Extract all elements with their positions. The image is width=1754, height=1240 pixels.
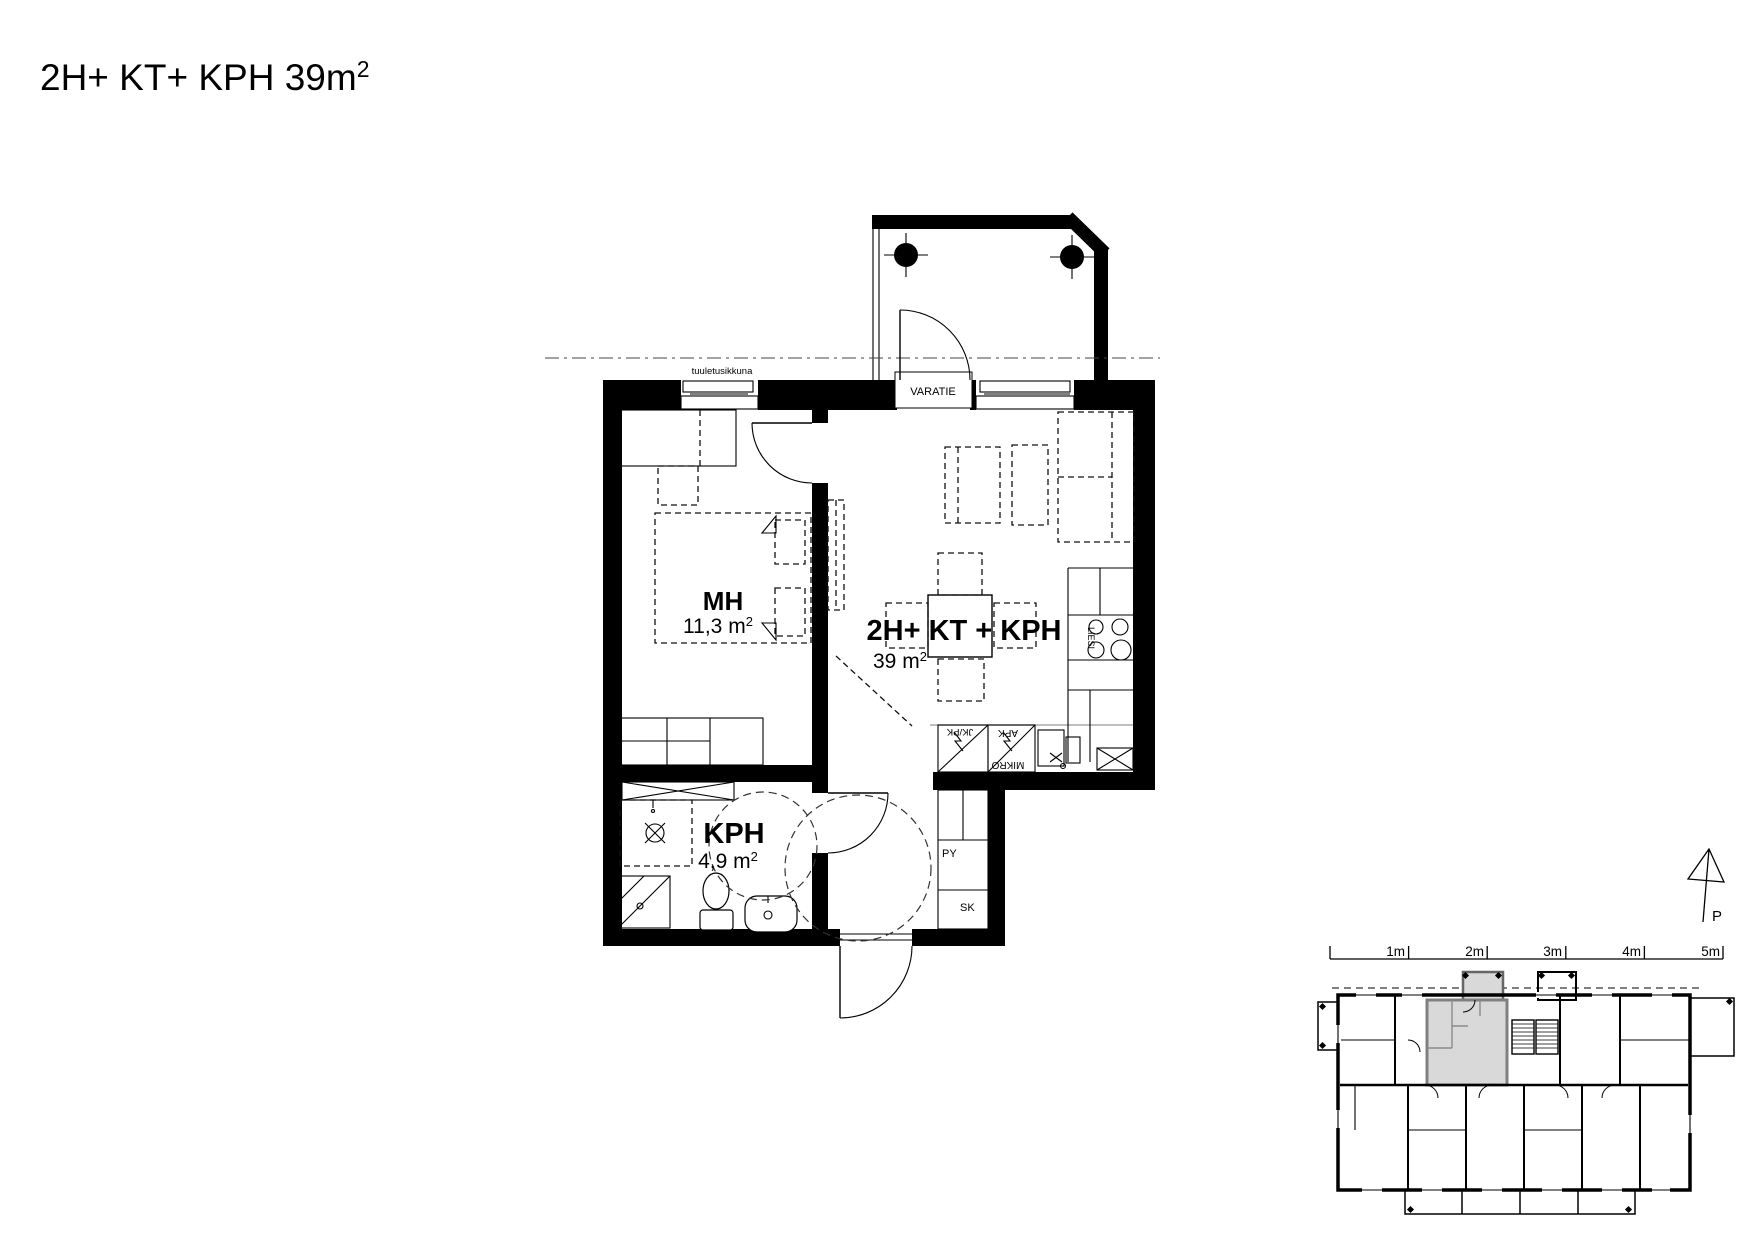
bathroom-area: 4,9 m2	[698, 849, 758, 873]
washer-reservation	[622, 782, 734, 800]
vent-window-label: tuuletusikkuna	[692, 366, 753, 377]
dining-chair	[938, 659, 984, 701]
scale-bar: 1m 2m 3m 4m 5m	[1330, 944, 1723, 959]
sofa	[1058, 412, 1134, 542]
washbasin	[745, 896, 797, 932]
scale-label: 4m	[1622, 944, 1641, 959]
bedroom-label: MH	[703, 586, 743, 616]
living-label-group: 2H+ KT + KPH 39 m2	[867, 615, 1062, 673]
stove-label: LIESI	[1086, 627, 1096, 649]
balcony	[872, 215, 1108, 380]
page-title: 2H+ KT+ KPH 39m2	[40, 56, 369, 98]
scale-label: 1m	[1386, 944, 1405, 959]
living-label: 2H+ KT + KPH	[867, 615, 1062, 647]
bathroom-label: KPH	[703, 818, 764, 850]
kitchen-sink	[1038, 730, 1080, 769]
north-label: P	[1712, 908, 1722, 925]
coffee-table	[1012, 445, 1048, 525]
cleaning-closet-label: SK	[960, 902, 975, 914]
siteplan-columns	[1319, 972, 1733, 1213]
armchair	[945, 447, 1000, 523]
stool	[658, 466, 698, 505]
emergency-exit-label: VARATIE	[910, 386, 955, 398]
shower-tray	[618, 876, 670, 928]
appliance-reservation-box	[1097, 748, 1133, 770]
dining-chair	[938, 553, 982, 595]
site-plan	[1318, 972, 1734, 1214]
balcony-railing	[873, 229, 879, 380]
wardrobe	[621, 410, 736, 466]
bathroom-door	[828, 793, 888, 853]
closet-row	[618, 718, 763, 765]
toilet	[700, 873, 733, 930]
balcony-row	[1405, 1190, 1635, 1214]
balcony-wall-top	[872, 215, 1074, 229]
floorplan-page: { "page": { "title": "2H+ KT+ KPH 39m", …	[0, 0, 1754, 1240]
scale-label: 5m	[1701, 944, 1720, 959]
accessibility-circle	[785, 795, 931, 941]
scale-label: 2m	[1465, 944, 1484, 959]
unit-highlight	[1427, 1000, 1507, 1085]
microwave-label: MIKRO	[991, 759, 1024, 770]
living-window	[976, 380, 1074, 410]
living-area: 39 m2	[873, 649, 927, 673]
tv-shelf	[828, 500, 844, 610]
shower-area	[620, 800, 692, 866]
north-arrow: P	[1688, 849, 1724, 925]
entrance-door	[840, 934, 912, 1018]
bedroom-window	[681, 380, 758, 410]
fridge-label: JK/PK	[946, 726, 973, 737]
floorplan-canvas: 2H+ KT+ KPH 39m2	[0, 0, 1754, 1240]
balcony-wall-right	[1094, 247, 1108, 380]
scale-label: 3m	[1543, 944, 1562, 959]
bathroom-label-group: KPH 4,9 m2	[698, 818, 765, 873]
bedroom-door	[752, 423, 812, 483]
laundry-closet-label: PY	[942, 848, 957, 860]
dishwasher-label: APK	[998, 727, 1018, 738]
bedroom-label-group: MH 11,3 m2	[683, 586, 753, 638]
stairwell	[1512, 1020, 1558, 1054]
bedroom-area: 11,3 m2	[683, 614, 753, 638]
balcony-column	[884, 233, 928, 277]
